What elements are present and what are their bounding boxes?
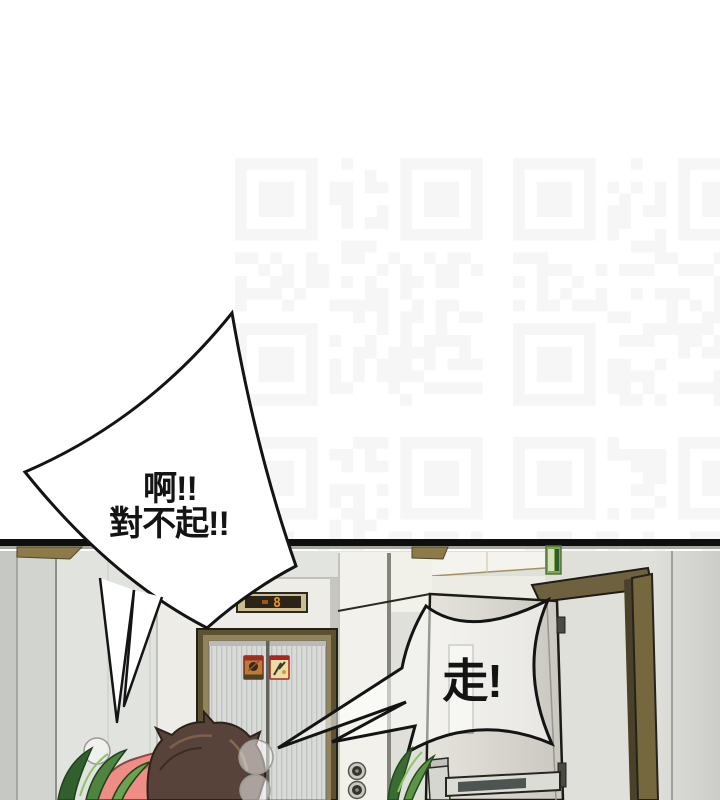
warning-sign-right-icon bbox=[270, 656, 289, 679]
deadbolt-lock-icon-bottom bbox=[349, 782, 366, 799]
ceiling-trim-left bbox=[17, 547, 82, 559]
scene-svg: 8 bbox=[0, 0, 720, 800]
comic-canvas: 8 bbox=[0, 0, 720, 800]
speech-text-apology-line2: 對不起!! bbox=[109, 505, 229, 543]
bubble-circle bbox=[240, 775, 270, 800]
apartment-door-panel bbox=[338, 553, 390, 800]
deadbolt-lock-icon-top bbox=[349, 763, 366, 780]
right-wall bbox=[656, 551, 720, 800]
left-wall-edge bbox=[0, 551, 17, 800]
door-hinge-top bbox=[557, 617, 565, 633]
bubble-circle bbox=[239, 740, 273, 774]
ceiling-trim-mid bbox=[412, 547, 448, 559]
warning-sign-left-icon bbox=[244, 656, 263, 679]
elevator-door-gap bbox=[266, 641, 270, 800]
floor-indicator-arrow-icon bbox=[262, 600, 268, 604]
exit-sign-icon bbox=[546, 546, 561, 574]
speech-text-apology-line1: 啊!! bbox=[143, 470, 197, 508]
floor-indicator-digit: 8 bbox=[273, 596, 281, 611]
left-wall-column bbox=[17, 551, 55, 800]
speech-text-command: 走! bbox=[442, 655, 501, 707]
